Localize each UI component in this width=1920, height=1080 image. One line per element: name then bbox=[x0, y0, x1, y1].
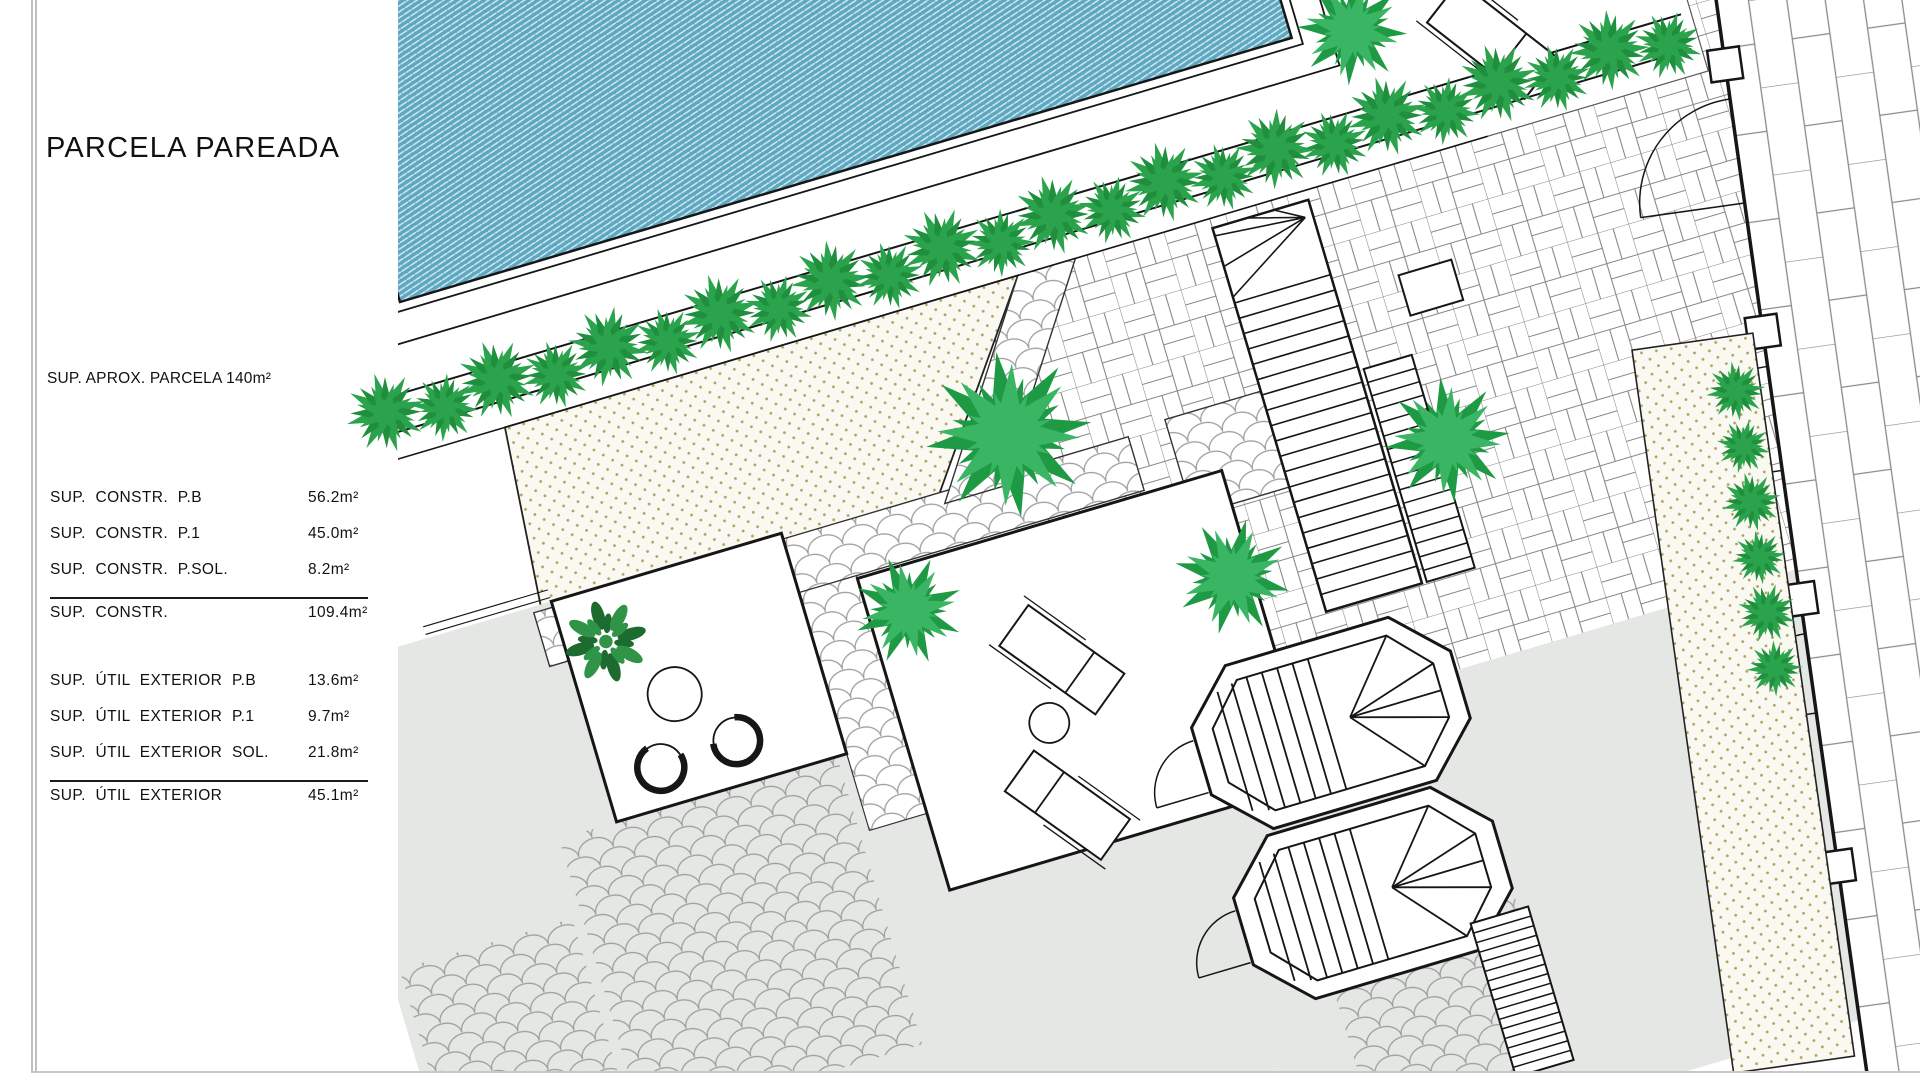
info-panel: PARCELA PAREADA SUP. APROX. PARCELA 140m… bbox=[0, 0, 400, 1080]
row-label: SUP. ÚTIL EXTERIOR SOL. bbox=[50, 744, 269, 761]
table-row: SUP. CONSTR. P.B 56.2m² bbox=[50, 489, 368, 525]
row-label: SUP. CONSTR. P.B bbox=[50, 489, 202, 506]
exterior-area-table: SUP. ÚTIL EXTERIOR P.B 13.6m² SUP. ÚTIL … bbox=[50, 672, 368, 818]
constructed-area-table: SUP. CONSTR. P.B 56.2m² SUP. CONSTR. P.1… bbox=[50, 489, 368, 635]
row-label: SUP. CONSTR. P.1 bbox=[50, 525, 200, 542]
drawing-sheet: PARCELA PAREADA SUP. APROX. PARCELA 140m… bbox=[0, 0, 1920, 1080]
row-value: 45.1m² bbox=[308, 787, 359, 805]
row-value: 56.2m² bbox=[308, 489, 359, 507]
row-label: SUP. ÚTIL EXTERIOR P.B bbox=[50, 672, 256, 689]
table-row: SUP. CONSTR. P.SOL. 8.2m² bbox=[50, 561, 368, 597]
row-label: SUP. ÚTIL EXTERIOR bbox=[50, 787, 222, 804]
row-value: 9.7m² bbox=[308, 708, 350, 726]
row-value: 21.8m² bbox=[308, 744, 359, 762]
table-total-row: SUP. ÚTIL EXTERIOR 45.1m² bbox=[50, 780, 368, 818]
row-label: SUP. ÚTIL EXTERIOR P.1 bbox=[50, 708, 254, 725]
row-label: SUP. CONSTR. bbox=[50, 604, 168, 621]
sheet-border-left-inner bbox=[35, 0, 37, 1072]
row-label: SUP. CONSTR. P.SOL. bbox=[50, 561, 228, 578]
row-value: 45.0m² bbox=[308, 525, 359, 543]
table-row: SUP. CONSTR. P.1 45.0m² bbox=[50, 525, 368, 561]
parcel-area-note: SUP. APROX. PARCELA 140m² bbox=[47, 370, 271, 388]
table-row: SUP. ÚTIL EXTERIOR SOL. 21.8m² bbox=[50, 744, 368, 780]
row-value: 8.2m² bbox=[308, 561, 350, 579]
sheet-border-left bbox=[31, 0, 33, 1072]
row-value: 109.4m² bbox=[308, 604, 368, 622]
palm-tree bbox=[1294, 0, 1411, 89]
row-value: 13.6m² bbox=[308, 672, 359, 690]
table-total-row: SUP. CONSTR. 109.4m² bbox=[50, 597, 368, 635]
table-row: SUP. ÚTIL EXTERIOR P.1 9.7m² bbox=[50, 708, 368, 744]
plan-title: PARCELA PAREADA bbox=[46, 132, 340, 165]
table-row: SUP. ÚTIL EXTERIOR P.B 13.6m² bbox=[50, 672, 368, 708]
